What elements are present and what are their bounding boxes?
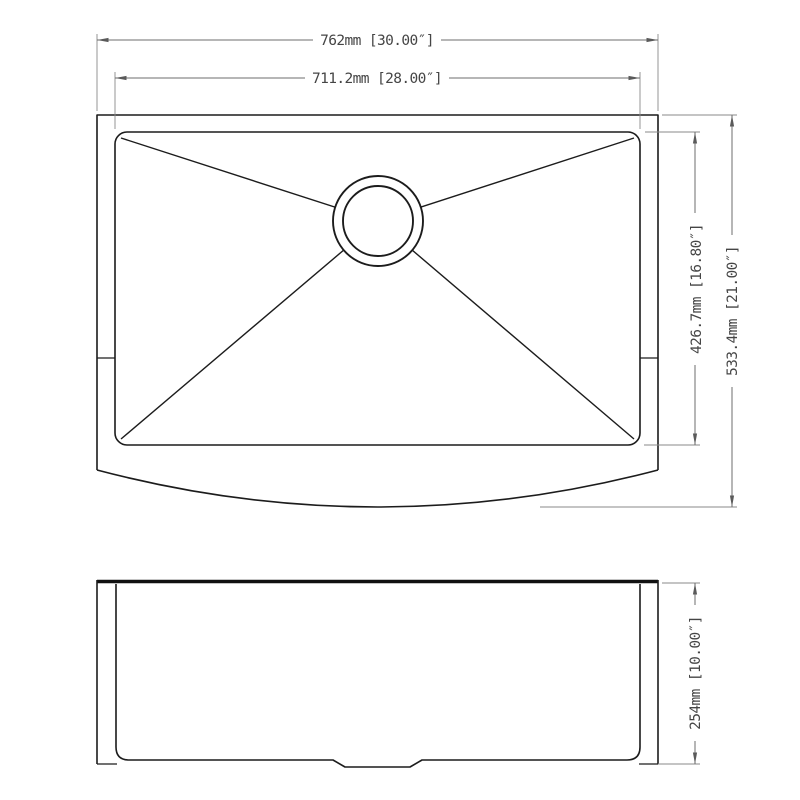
dim-text-overall-depth: 533.4mm [21.00″] <box>725 246 741 376</box>
dim-text-inner-depth: 426.7mm [16.80″] <box>689 224 705 354</box>
slope-line-bottom-left <box>121 221 378 439</box>
dim-label-inner-width: 711.2mm [28.00″] <box>305 70 449 87</box>
drain-outer-circle <box>333 176 423 266</box>
dimensions: 762mm [30.00″] 711.2mm [28.00″] 426.7mm … <box>97 32 741 764</box>
sink-outer-rim <box>97 115 658 470</box>
slope-line-bottom-right <box>378 221 634 439</box>
dim-label-apron-height: 254mm [10.00″] <box>687 605 704 741</box>
sink-technical-drawing: 762mm [30.00″] 711.2mm [28.00″] 426.7mm … <box>0 0 800 800</box>
front-view <box>97 580 658 767</box>
apron-panel-outline <box>116 584 640 767</box>
dim-text-apron-height: 254mm [10.00″] <box>688 616 704 730</box>
dim-label-overall-width: 762mm [30.00″] <box>313 32 441 49</box>
dim-label-overall-depth: 533.4mm [21.00″] <box>724 235 741 387</box>
dim-text-overall-width: 762mm [30.00″] <box>320 33 434 49</box>
drawing-svg: 762mm [30.00″] 711.2mm [28.00″] 426.7mm … <box>0 0 800 800</box>
top-view <box>97 115 658 507</box>
dim-text-inner-width: 711.2mm [28.00″] <box>312 71 442 87</box>
dim-label-inner-depth: 426.7mm [16.80″] <box>688 213 705 365</box>
apron-front-curve <box>97 470 658 507</box>
